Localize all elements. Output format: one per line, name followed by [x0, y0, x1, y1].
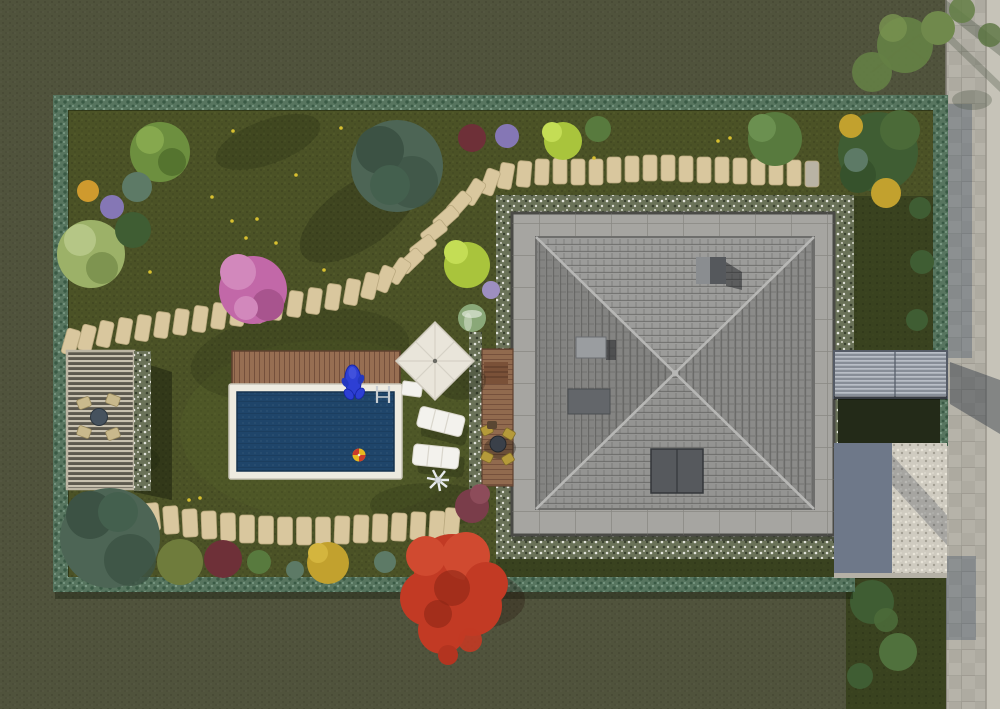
stepping-stone: [697, 157, 711, 183]
aerial-site-render: [0, 0, 1000, 709]
pool-zone: [229, 351, 402, 479]
olive-bush: [157, 539, 203, 585]
pool-deck: [232, 351, 400, 385]
scene-canvas: [0, 0, 1000, 709]
driveway-concrete: [834, 443, 892, 575]
blue-spruce-north: [351, 120, 443, 212]
stepping-stone: [805, 161, 819, 187]
stepping-stone: [661, 155, 675, 181]
table: [91, 409, 108, 426]
dark-lawn-south: [496, 559, 854, 577]
stepping-stone: [715, 157, 729, 183]
stepping-stone: [391, 513, 407, 542]
road-edge: [986, 0, 1000, 709]
red-bush: [458, 124, 486, 152]
stepping-stone: [297, 517, 312, 545]
stepping-stone: [410, 512, 426, 541]
orange-flowers: [77, 180, 99, 202]
stepping-stone: [163, 506, 180, 535]
stepping-stone: [240, 515, 255, 543]
stepping-stone: [182, 509, 198, 538]
beach-ball: [353, 449, 366, 462]
parasol-pole: [433, 359, 437, 363]
roof-apex: [672, 370, 678, 376]
stepping-stone: [589, 159, 603, 185]
skylight-shadow: [606, 340, 616, 360]
footbridge-slats: [834, 351, 947, 398]
purple-flowers: [100, 195, 124, 219]
roof-skylight: [576, 337, 606, 358]
hedge-east: [933, 95, 948, 357]
stepping-stone: [535, 159, 550, 185]
pergola-zone: [67, 351, 172, 500]
outer-garden-bottom-right: [846, 578, 946, 709]
tree-shadow-blob: [952, 90, 992, 110]
bridge-edge-shadow: [834, 396, 947, 400]
chimney: [710, 257, 726, 284]
green-bush: [585, 116, 611, 142]
sidewalk: [946, 0, 1000, 709]
dining-deck-zone: [469, 332, 516, 498]
stepping-stone: [516, 160, 532, 187]
hedge-shadow-on-sidewalk: [946, 104, 972, 358]
stepping-stone: [259, 516, 274, 544]
deck-mat: [484, 362, 508, 384]
yellow-bush: [839, 114, 863, 138]
teal-bush: [122, 172, 152, 202]
stepping-stone: [429, 511, 445, 540]
chimney: [696, 257, 710, 284]
dark-bush: [115, 212, 151, 248]
stepping-stone: [625, 156, 639, 182]
stepping-stone: [220, 513, 235, 541]
hip-roof: [536, 237, 814, 509]
stepping-stone: [553, 158, 567, 184]
pergola-flower-strip: [134, 351, 151, 491]
stepping-stone: [733, 158, 747, 184]
stepping-stone: [278, 517, 293, 545]
purple-flowers: [495, 124, 519, 148]
dining-chair-dark: [487, 421, 497, 429]
red-bush: [204, 540, 242, 578]
shadow-band: [946, 556, 976, 640]
stepping-stone: [372, 514, 388, 543]
curb-strip: [834, 573, 947, 578]
stepping-stone: [643, 155, 657, 181]
yellow-bush: [871, 178, 901, 208]
stepping-stone: [334, 516, 350, 545]
stepping-stone: [571, 159, 585, 185]
stepping-stone: [679, 156, 693, 182]
purple-flowers: [482, 281, 500, 299]
stepping-stone: [316, 517, 331, 545]
hedge-north: [53, 95, 948, 110]
house: [496, 195, 854, 559]
roof-vent: [568, 389, 610, 414]
sun-lounger: [411, 444, 466, 478]
stepping-stone: [353, 515, 369, 544]
stepping-stone: [201, 511, 217, 540]
stepping-stone: [607, 157, 621, 183]
pool-water: [237, 392, 394, 471]
shaded-court: [838, 398, 940, 443]
dining-table: [490, 436, 506, 452]
stepping-stone: [787, 160, 801, 186]
